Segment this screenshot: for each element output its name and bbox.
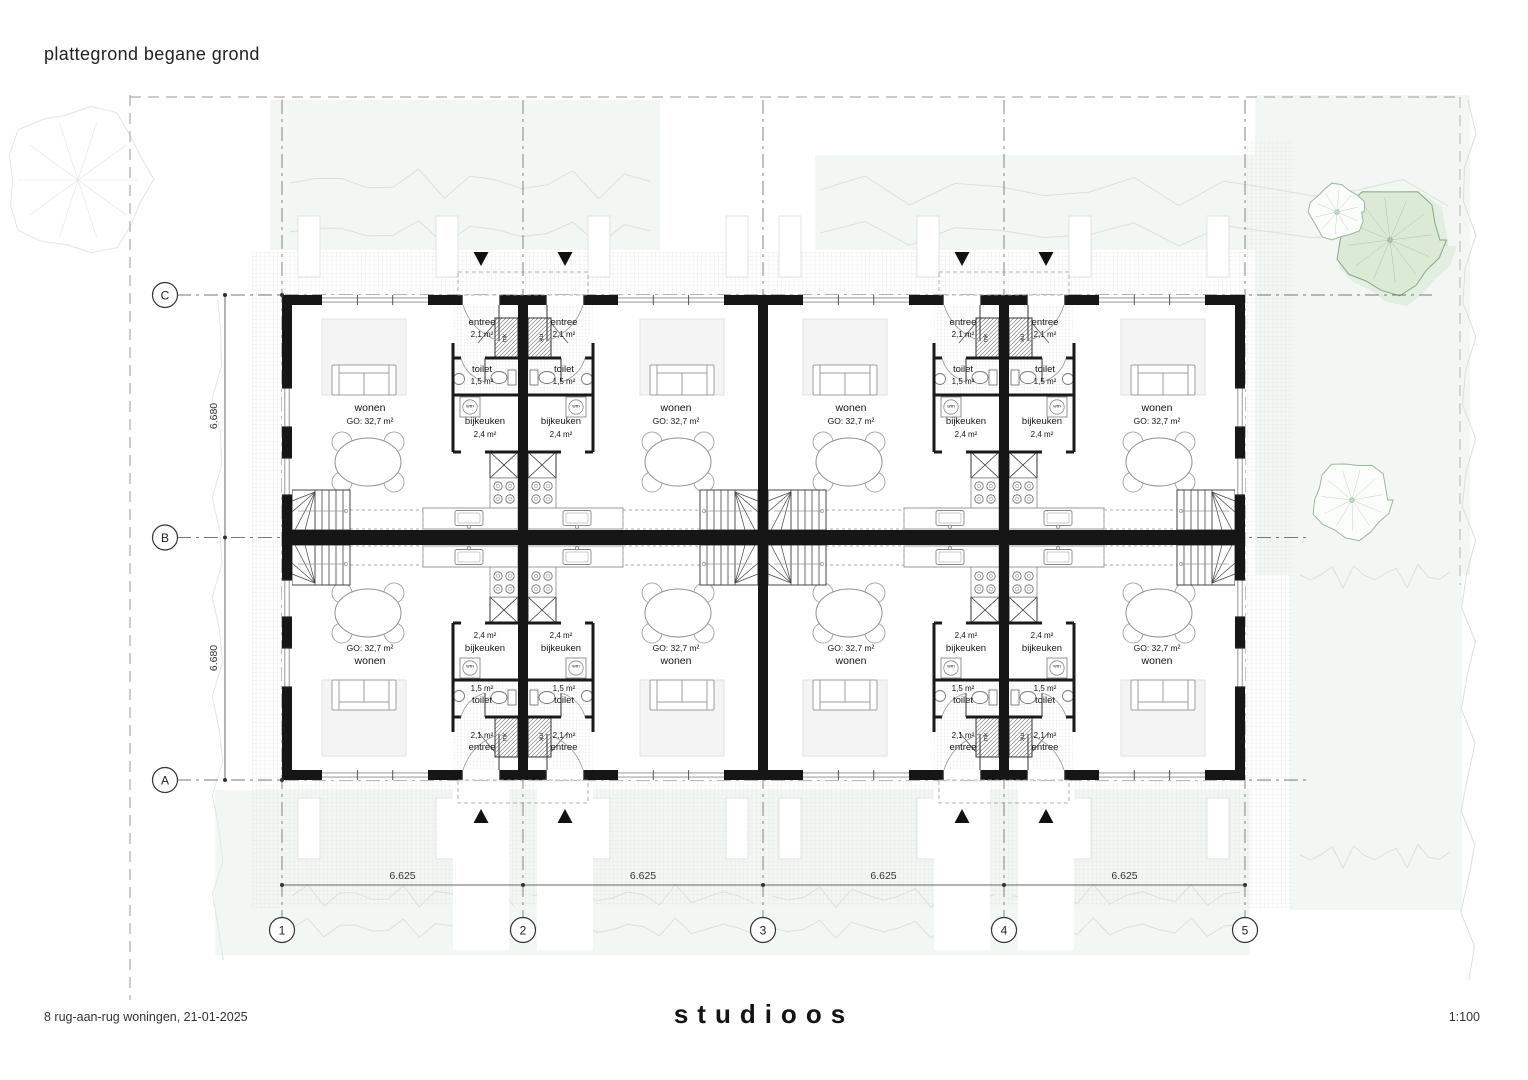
wonen-area-label: GO: 32,7 m²: [828, 643, 875, 653]
bijkeuken-label: bijkeuken: [946, 643, 986, 654]
stairs: [292, 490, 350, 530]
dim-label-depth2: 6.680: [208, 645, 220, 671]
dining-table: [1126, 438, 1192, 486]
mk-label: mk: [538, 733, 544, 742]
basin: [1063, 691, 1074, 702]
wonen-label: wonen: [835, 402, 867, 414]
wonen-label: wonen: [354, 402, 386, 414]
entree-area-label: 2,1 m²: [471, 330, 494, 339]
wonen-label: wonen: [1141, 402, 1173, 414]
garden-shed: [588, 216, 610, 277]
wonen-label: wonen: [660, 655, 692, 667]
stairs: [700, 545, 758, 585]
garden-shed: [779, 216, 801, 277]
side-window: [1235, 388, 1245, 427]
garden-shed: [726, 216, 748, 277]
counter-dashed: [623, 546, 700, 565]
basin: [935, 374, 946, 385]
counter-dashed: [350, 510, 423, 529]
entree-area-label: 2,1 m²: [553, 330, 576, 339]
garden-shed: [917, 216, 939, 277]
toilet-area-label: 1,5 m²: [553, 377, 576, 386]
wc-tank: [530, 690, 538, 705]
burner: [987, 572, 995, 580]
wm-label: wm: [1053, 665, 1060, 670]
stairs: [768, 545, 826, 585]
grid-axis-label-b: B: [161, 531, 169, 545]
garden-shed: [1069, 216, 1091, 277]
entree-area-label: 2,1 m²: [471, 731, 494, 740]
wc-bowl: [539, 692, 555, 704]
wm-label: wm: [1053, 405, 1060, 410]
burner: [544, 495, 552, 503]
entree-area-label: 2,1 m²: [1034, 731, 1057, 740]
dim-label-bay2: 6.625: [630, 870, 656, 882]
garden-shed: [436, 216, 458, 277]
entree-label: entree: [1032, 742, 1059, 753]
burner: [494, 495, 502, 503]
garden-path: [934, 782, 990, 950]
dining-table: [645, 589, 711, 637]
front-door-opening: [462, 770, 500, 780]
faucet: [948, 525, 951, 528]
front-door-opening: [462, 295, 500, 305]
wc-tank: [989, 690, 997, 705]
mk-label: mk: [503, 732, 509, 741]
bijkeuken-area-label: 2,4 m²: [955, 631, 978, 640]
toilet-label: toilet: [554, 695, 574, 706]
paving-hatch: [1245, 140, 1293, 908]
dim-label-bay4: 6.625: [1111, 870, 1137, 882]
grid-axis-label-1: 1: [279, 924, 286, 938]
dining-table: [335, 438, 401, 486]
faucet: [1056, 547, 1059, 550]
wonen-area-label: GO: 32,7 m²: [653, 416, 700, 426]
bijkeuken-area-label: 2,4 m²: [1031, 430, 1054, 439]
bijkeuken-area-label: 2,4 m²: [474, 631, 497, 640]
front-door-opening: [943, 770, 981, 780]
entree-label: entree: [950, 742, 977, 753]
bijkeuken-label: bijkeuken: [1022, 643, 1062, 654]
stairs: [1177, 545, 1235, 585]
burner: [506, 572, 514, 580]
grid-axis-label-c: C: [161, 289, 170, 303]
burner: [544, 585, 552, 593]
garden-path: [537, 782, 593, 950]
entree-label: entree: [469, 742, 496, 753]
burner: [1025, 585, 1033, 593]
burner: [544, 482, 552, 490]
basin: [454, 374, 465, 385]
mk-label: mk: [984, 732, 990, 741]
burner: [544, 572, 552, 580]
mk-label: mk: [1019, 733, 1025, 742]
dining-table: [816, 589, 882, 637]
wonen-label: wonen: [660, 402, 692, 414]
grid-axis-label-a: A: [161, 774, 169, 788]
stairs: [700, 490, 758, 530]
wc-bowl: [491, 372, 507, 384]
cooktop: [1009, 567, 1037, 597]
cooktop: [971, 567, 999, 597]
dim-label-bay1: 6.625: [389, 870, 415, 882]
dining-table: [335, 589, 401, 637]
burner: [987, 585, 995, 593]
faucet: [1056, 525, 1059, 528]
wm-label: wm: [466, 405, 473, 410]
garden-path: [1018, 782, 1074, 950]
front-door-opening: [546, 770, 584, 780]
bijkeuken-area-label: 2,4 m²: [550, 430, 573, 439]
toilet-area-label: 1,5 m²: [1034, 377, 1057, 386]
wm-label: wm: [572, 665, 579, 670]
bijkeuken-label: bijkeuken: [465, 416, 505, 427]
entree-label: entree: [1032, 317, 1059, 328]
faucet: [575, 525, 578, 528]
bijkeuken-area-label: 2,4 m²: [955, 430, 978, 439]
toilet-label: toilet: [953, 695, 973, 706]
basin: [1063, 374, 1074, 385]
front-door-opening: [1027, 295, 1065, 305]
toilet-label: toilet: [472, 695, 492, 706]
entree-area-label: 2,1 m²: [553, 731, 576, 740]
counter-dashed: [826, 546, 904, 565]
wc-tank: [530, 370, 538, 385]
burner: [975, 572, 983, 580]
cooktop: [971, 478, 999, 508]
wall: [999, 295, 1009, 780]
cooktop: [528, 478, 556, 508]
entree-label: entree: [469, 317, 496, 328]
faucet: [575, 547, 578, 550]
wm-label: wm: [466, 665, 473, 670]
burner: [1013, 495, 1021, 503]
burner: [494, 572, 502, 580]
grid-axis-label-2: 2: [520, 924, 527, 938]
garden-path: [453, 782, 509, 950]
burner: [494, 585, 502, 593]
wonen-area-label: GO: 32,7 m²: [1134, 643, 1181, 653]
dining-table: [645, 438, 711, 486]
faucet: [467, 547, 470, 550]
burner: [987, 495, 995, 503]
wonen-area-label: GO: 32,7 m²: [1134, 416, 1181, 426]
counter-dashed: [1104, 510, 1177, 529]
wonen-label: wonen: [1141, 655, 1173, 667]
burner: [506, 482, 514, 490]
mk-label: mk: [984, 333, 990, 342]
wonen-area-label: GO: 32,7 m²: [828, 416, 875, 426]
cooktop: [490, 567, 518, 597]
burner: [987, 482, 995, 490]
mk-label: mk: [503, 333, 509, 342]
cooktop: [490, 478, 518, 508]
cooktop: [1009, 478, 1037, 508]
wm-label: wm: [947, 665, 954, 670]
faucet: [948, 547, 951, 550]
wc-bowl: [972, 372, 988, 384]
cooktop: [528, 567, 556, 597]
entree-label: entree: [551, 742, 578, 753]
wm-label: wm: [572, 405, 579, 410]
faucet: [467, 525, 470, 528]
bijkeuken-label: bijkeuken: [541, 416, 581, 427]
wc-tank: [508, 370, 516, 385]
entree-area-label: 2,1 m²: [952, 330, 975, 339]
scale-label: 1:100: [1449, 1010, 1480, 1024]
garden-shed: [779, 798, 801, 859]
grid-axis-label-3: 3: [760, 924, 767, 938]
burner: [975, 495, 983, 503]
wonen-label: wonen: [354, 655, 386, 667]
burner: [1025, 495, 1033, 503]
paving-hatch: [252, 252, 282, 908]
bijkeuken-label: bijkeuken: [541, 643, 581, 654]
basin: [935, 691, 946, 702]
bijkeuken-area-label: 2,4 m²: [474, 430, 497, 439]
wc-bowl: [1020, 692, 1036, 704]
wonen-area-label: GO: 32,7 m²: [653, 643, 700, 653]
burner: [1013, 482, 1021, 490]
wall: [518, 295, 528, 780]
toilet-label: toilet: [1035, 364, 1055, 375]
basin: [582, 691, 593, 702]
grid-axis-label-4: 4: [1001, 924, 1008, 938]
tree-faint: [9, 106, 154, 252]
counter-dashed: [1104, 546, 1177, 565]
toilet-area-label: 1,5 m²: [1034, 684, 1057, 693]
bijkeuken-label: bijkeuken: [1022, 416, 1062, 427]
burner: [1025, 572, 1033, 580]
front-door-opening: [546, 295, 584, 305]
garden-area: [1290, 555, 1462, 910]
bijkeuken-area-label: 2,4 m²: [1031, 631, 1054, 640]
burner: [494, 482, 502, 490]
garden-shed: [726, 798, 748, 859]
toilet-area-label: 1,5 m²: [952, 684, 975, 693]
burner: [532, 495, 540, 503]
counter-dashed: [623, 510, 700, 529]
basin: [582, 374, 593, 385]
burner: [1013, 572, 1021, 580]
wc-bowl: [491, 692, 507, 704]
burner: [532, 572, 540, 580]
entree-label: entree: [950, 317, 977, 328]
burner: [975, 585, 983, 593]
grid-axis-label-5: 5: [1242, 924, 1249, 938]
side-window: [1235, 648, 1245, 687]
toilet-area-label: 1,5 m²: [952, 377, 975, 386]
studio-logo: studioos: [0, 999, 1528, 1030]
wc-tank: [1011, 690, 1019, 705]
burner: [975, 482, 983, 490]
dim-label-bay3: 6.625: [870, 870, 896, 882]
mk-label: mk: [1019, 334, 1025, 343]
side-window: [282, 458, 292, 495]
side-window: [1235, 458, 1245, 495]
wall: [758, 295, 768, 780]
mk-label: mk: [538, 334, 544, 343]
entree-area-label: 2,1 m²: [952, 731, 975, 740]
dining-table: [816, 438, 882, 486]
garden-shed: [1207, 216, 1229, 277]
wc-tank: [989, 370, 997, 385]
burner: [1013, 585, 1021, 593]
counter-dashed: [826, 510, 904, 529]
wc-tank: [1011, 370, 1019, 385]
basin: [454, 691, 465, 702]
paving-hatch: [282, 780, 1245, 906]
front-door-opening: [1027, 770, 1065, 780]
paving-hatch: [282, 252, 1245, 295]
wonen-area-label: GO: 32,7 m²: [347, 416, 394, 426]
garden-shed: [1207, 798, 1229, 859]
dining-table: [1126, 589, 1192, 637]
wc-tank: [508, 690, 516, 705]
side-window: [282, 388, 292, 427]
entree-area-label: 2,1 m²: [1034, 330, 1057, 339]
garden-shed: [298, 216, 320, 277]
floor-plan-drawing: wonenGO: 32,7 m²entree2,1 m²toilet1,5 m²…: [0, 0, 1528, 1080]
toilet-label: toilet: [953, 364, 973, 375]
stairs: [292, 545, 350, 585]
wonen-area-label: GO: 32,7 m²: [347, 643, 394, 653]
wm-label: wm: [947, 405, 954, 410]
toilet-area-label: 1,5 m²: [471, 377, 494, 386]
toilet-area-label: 1,5 m²: [471, 684, 494, 693]
side-window: [282, 648, 292, 687]
wc-bowl: [972, 692, 988, 704]
stairs: [768, 490, 826, 530]
burner: [532, 585, 540, 593]
burner: [532, 482, 540, 490]
burner: [506, 585, 514, 593]
front-door-opening: [943, 295, 981, 305]
toilet-area-label: 1,5 m²: [553, 684, 576, 693]
bijkeuken-label: bijkeuken: [946, 416, 986, 427]
side-window: [282, 580, 292, 617]
counter-dashed: [350, 546, 423, 565]
bijkeuken-area-label: 2,4 m²: [550, 631, 573, 640]
toilet-label: toilet: [554, 364, 574, 375]
entree-label: entree: [551, 317, 578, 328]
dim-label-depth1: 6.680: [208, 403, 220, 429]
garden-shed: [298, 798, 320, 859]
toilet-label: toilet: [472, 364, 492, 375]
burner: [506, 495, 514, 503]
burner: [1025, 482, 1033, 490]
toilet-label: toilet: [1035, 695, 1055, 706]
side-window: [1235, 580, 1245, 617]
bijkeuken-label: bijkeuken: [465, 643, 505, 654]
wonen-label: wonen: [835, 655, 867, 667]
page-root: plattegrond begane grond wonenGO: 32,7 m…: [0, 0, 1528, 1080]
stairs: [1177, 490, 1235, 530]
